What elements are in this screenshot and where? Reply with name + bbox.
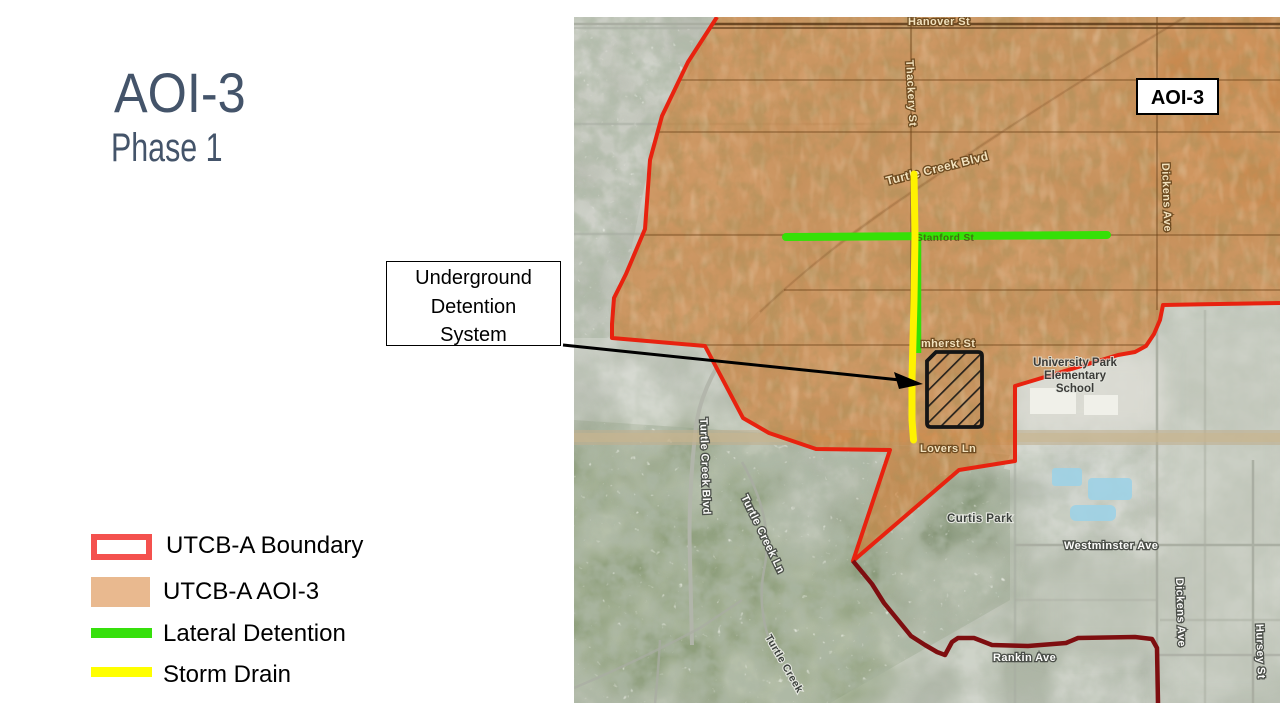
svg-text:Dickens Ave: Dickens Ave	[1173, 578, 1187, 647]
svg-text:School: School	[1056, 383, 1094, 395]
svg-text:Hursey St: Hursey St	[1253, 624, 1267, 679]
svg-text:mherst St: mherst St	[921, 338, 975, 350]
svg-text:Stanford St: Stanford St	[916, 233, 975, 244]
svg-text:University Park: University Park	[1033, 357, 1117, 369]
svg-text:Dickens Ave: Dickens Ave	[1159, 163, 1173, 232]
svg-text:Curtis Park: Curtis Park	[947, 513, 1013, 525]
svg-text:Rankin Ave: Rankin Ave	[993, 652, 1056, 664]
svg-text:Hanover St: Hanover St	[908, 16, 970, 28]
svg-text:AOI-3: AOI-3	[1151, 87, 1204, 109]
svg-text:Elementary: Elementary	[1044, 370, 1107, 382]
svg-text:Lovers Ln: Lovers Ln	[920, 443, 976, 455]
svg-text:Westminster Ave: Westminster Ave	[1064, 540, 1158, 552]
